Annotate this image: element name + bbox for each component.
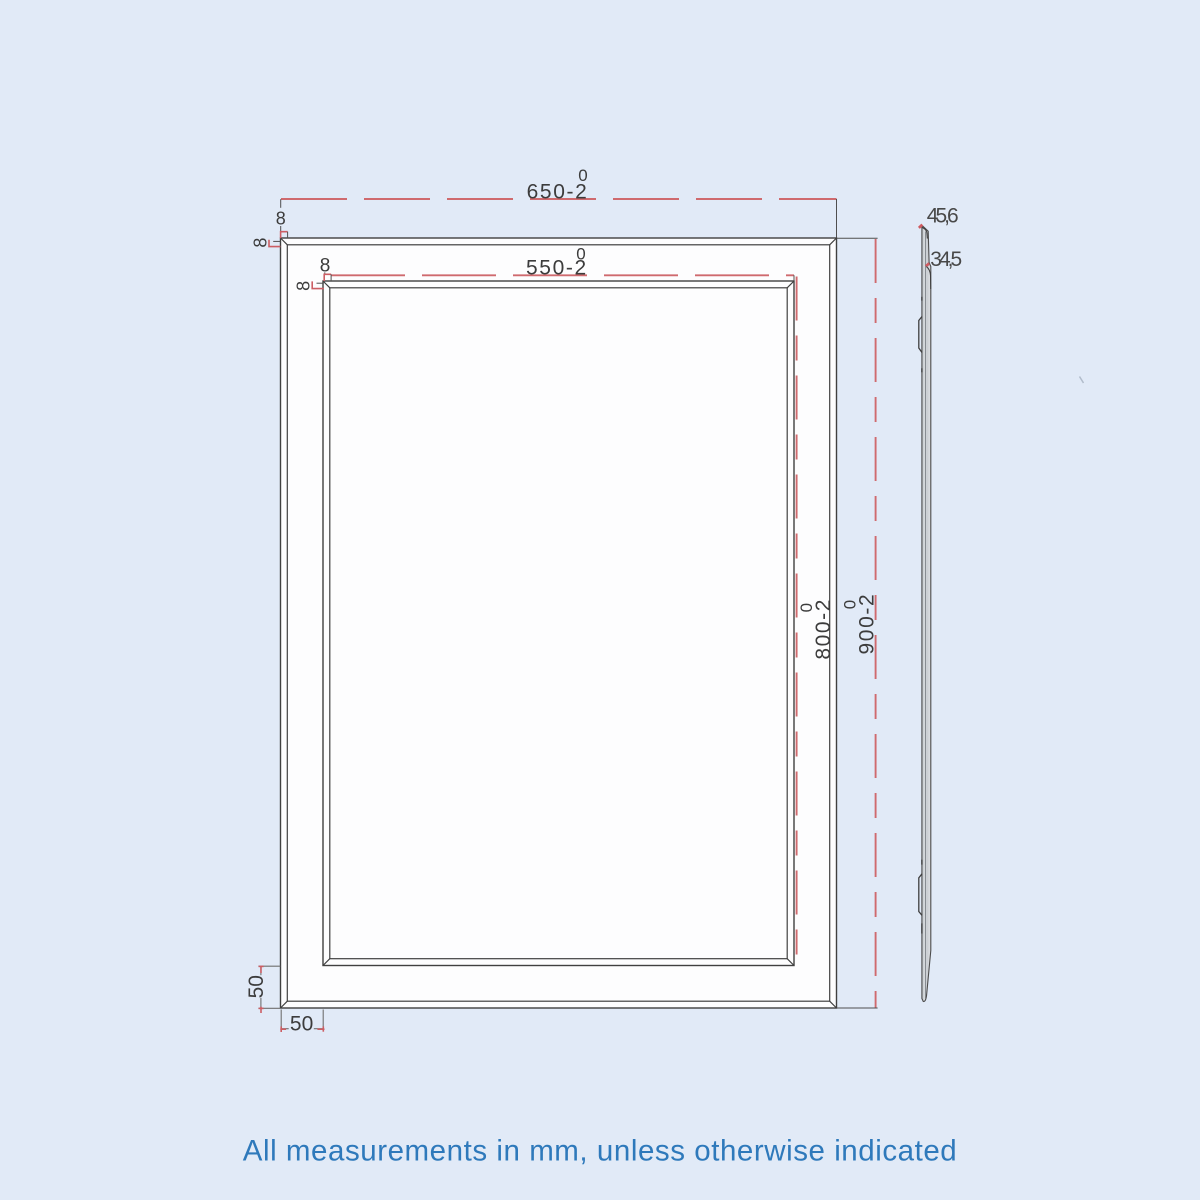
svg-text:0: 0 — [576, 245, 585, 264]
svg-text:8: 8 — [293, 281, 313, 291]
svg-text:8: 8 — [251, 238, 271, 248]
svg-text:0: 0 — [578, 166, 587, 185]
svg-text:50: 50 — [245, 975, 268, 998]
svg-text:34,5: 34,5 — [930, 248, 961, 271]
svg-text:45,6: 45,6 — [927, 204, 958, 227]
svg-text:All measurements in mm, unless: All measurements in mm, unless otherwise… — [243, 1135, 957, 1168]
svg-text:8: 8 — [320, 255, 331, 276]
svg-text:0: 0 — [841, 600, 860, 609]
svg-text:50: 50 — [290, 1012, 313, 1035]
svg-text:0: 0 — [797, 603, 816, 612]
svg-text:8: 8 — [276, 208, 286, 228]
